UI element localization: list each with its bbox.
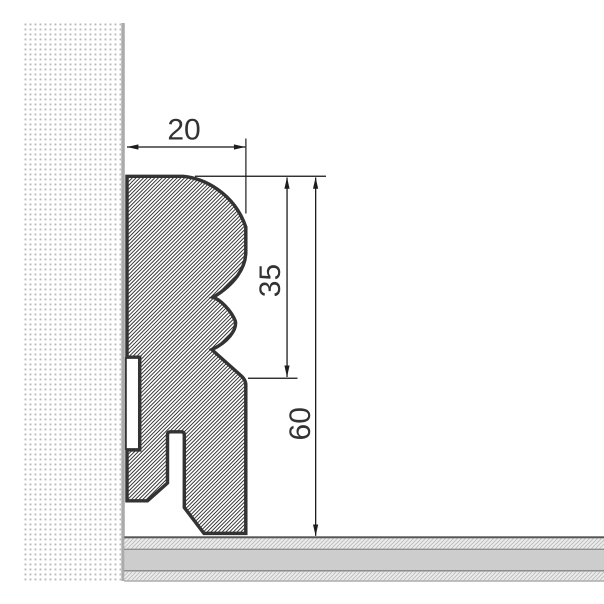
svg-text:60: 60 xyxy=(284,407,317,440)
svg-text:20: 20 xyxy=(167,114,200,147)
svg-text:35: 35 xyxy=(254,264,287,297)
